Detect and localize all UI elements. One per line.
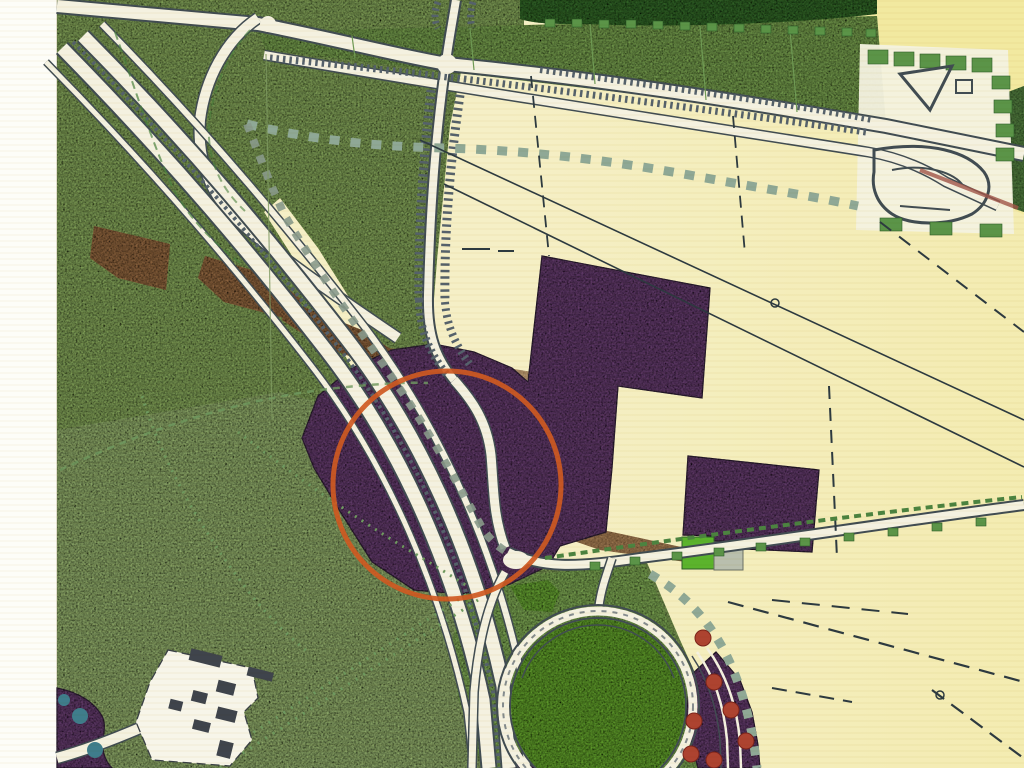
red-tree-symbol (738, 733, 754, 749)
tree-symbol (756, 543, 766, 551)
tree-symbol (844, 533, 854, 541)
scanned-map-page (0, 0, 1024, 768)
hedge-block (980, 224, 1002, 237)
hedge-block (868, 50, 888, 64)
tree-symbol (545, 19, 555, 27)
tree-symbol (630, 557, 640, 565)
red-tree-symbol (706, 752, 722, 768)
scan-margin (0, 0, 57, 768)
tree-symbol (599, 20, 609, 28)
tree-symbol (572, 19, 582, 27)
tree-symbol (761, 25, 771, 33)
hedge-block (920, 54, 940, 68)
tree-symbol (842, 28, 852, 36)
avenue-road-junction (437, 54, 457, 74)
teal-tree-symbol (58, 694, 70, 706)
hedge-block (972, 58, 992, 72)
tree-symbol (590, 562, 600, 570)
map-canvas (0, 0, 1024, 768)
tree-symbol (734, 24, 744, 32)
tree-symbol (626, 20, 636, 28)
tree-symbol (800, 538, 810, 546)
tree-symbol (707, 23, 717, 31)
tree-symbol (815, 27, 825, 35)
tree-symbol (672, 552, 682, 560)
hedge-block (894, 52, 914, 66)
teal-tree-symbol (72, 708, 88, 724)
tree-symbol (714, 548, 724, 556)
tree-symbol (788, 26, 798, 34)
hedge-block (930, 222, 952, 235)
hedge-block (992, 76, 1010, 89)
red-tree-symbol (695, 630, 711, 646)
tree-symbol (932, 523, 942, 531)
tree-symbol (866, 29, 876, 37)
red-tree-symbol (683, 746, 699, 762)
teal-tree-symbol (87, 742, 103, 758)
hedge-block (994, 100, 1012, 113)
red-tree-symbol (706, 674, 722, 690)
hedge-block (996, 148, 1014, 161)
tree-symbol (680, 22, 690, 30)
tree-symbol (653, 21, 663, 29)
red-tree-symbol (686, 713, 702, 729)
red-tree-symbol (723, 702, 739, 718)
tree-symbol (888, 528, 898, 536)
slip-road-junction (260, 16, 276, 32)
hedge-block (996, 124, 1014, 137)
tree-symbol (976, 518, 986, 526)
